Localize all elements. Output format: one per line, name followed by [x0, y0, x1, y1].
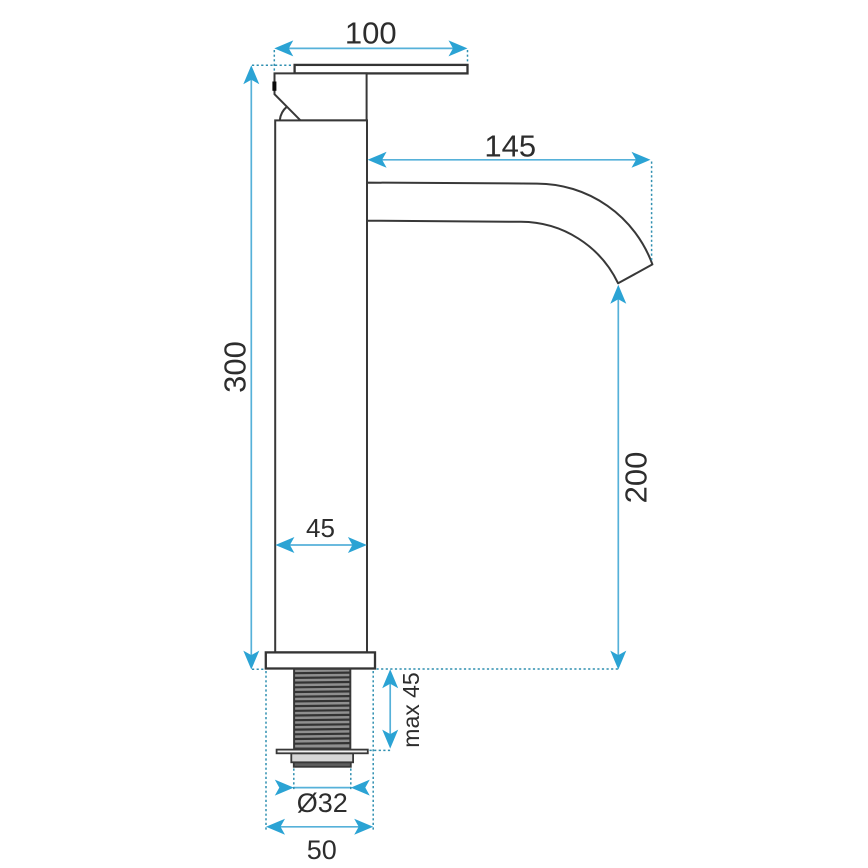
svg-text:145: 145	[484, 128, 536, 163]
svg-text:200: 200	[618, 452, 653, 504]
svg-text:max 45: max 45	[398, 672, 424, 747]
svg-text:Ø32: Ø32	[297, 788, 348, 818]
svg-text:300: 300	[218, 341, 253, 393]
svg-text:50: 50	[307, 835, 337, 865]
svg-text:100: 100	[345, 16, 397, 51]
svg-text:45: 45	[306, 513, 335, 543]
